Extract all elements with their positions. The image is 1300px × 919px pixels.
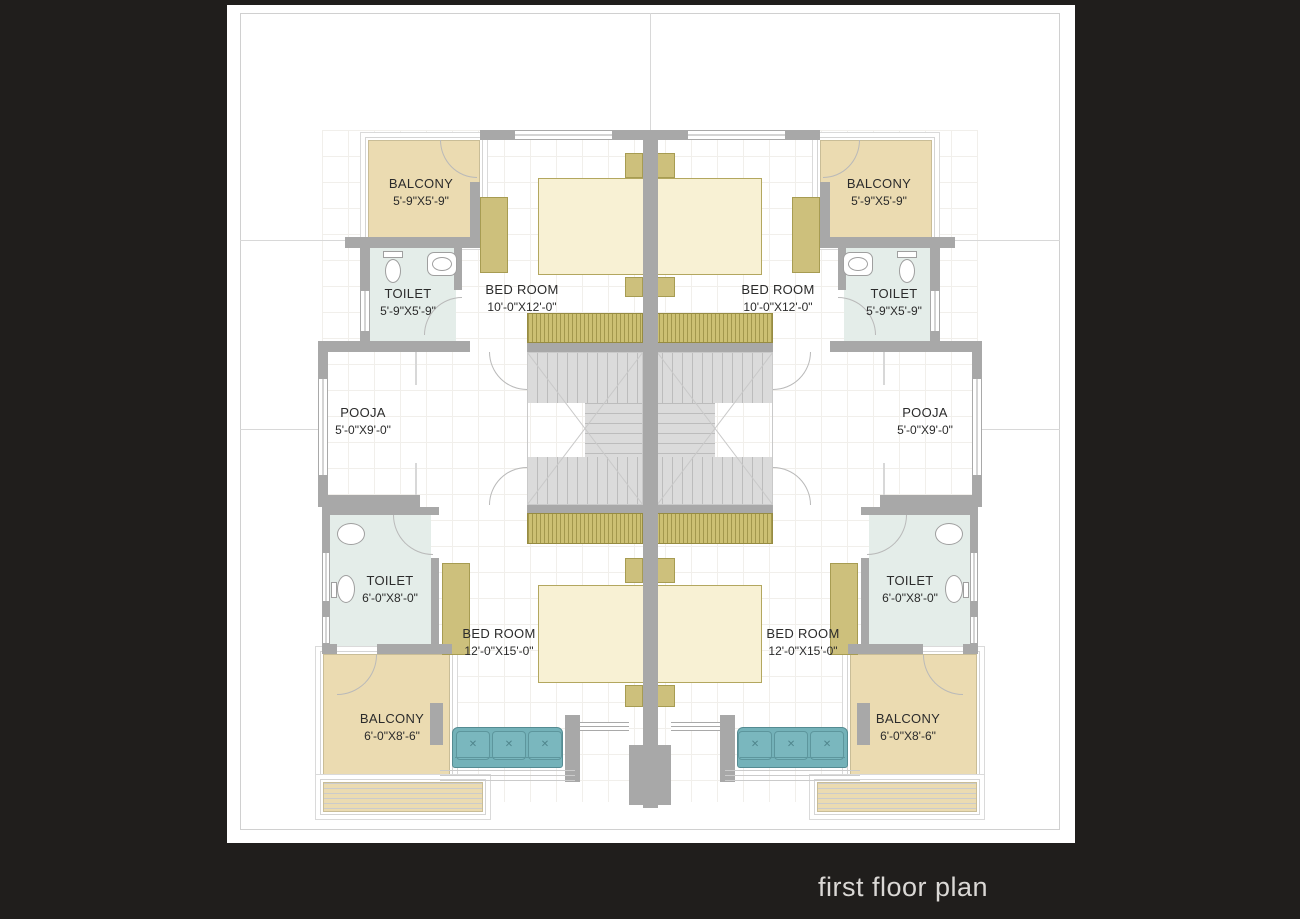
wall	[861, 507, 978, 515]
wall	[820, 237, 955, 248]
bedside-table	[657, 558, 675, 583]
bed	[538, 178, 644, 275]
bed	[656, 178, 762, 275]
sink	[427, 252, 457, 276]
wardrobe	[657, 313, 773, 343]
bedside-table	[657, 685, 675, 707]
wardrobe	[792, 197, 820, 273]
stairwell-outline	[527, 352, 643, 505]
wall	[880, 495, 982, 507]
wall	[318, 495, 420, 507]
sofa-cushion	[492, 731, 526, 760]
window	[688, 130, 785, 140]
room-label-toilet-bottom-right: TOILET6'-0"X8'-0"	[840, 573, 980, 605]
balcony-terrace-steps	[817, 782, 977, 812]
page: { "title": "first floor plan", "colors":…	[0, 0, 1300, 919]
room-label-bedroom-bottom-left: BED ROOM12'-0"X15'-0"	[429, 626, 569, 658]
terrace-edge-lines	[725, 770, 860, 785]
sofa	[452, 727, 563, 768]
wardrobe	[527, 513, 643, 544]
wall	[322, 507, 439, 515]
bedside-table	[625, 153, 643, 178]
party-wall	[643, 130, 658, 808]
pooja-opening-stub	[415, 352, 417, 385]
window	[515, 130, 612, 140]
room-label-balcony-bottom-left: BALCONY6'-0"X8'-6"	[322, 711, 462, 743]
pooja-opening-stub	[883, 463, 885, 495]
wall	[963, 644, 978, 654]
wall	[318, 341, 470, 352]
toilet-tank	[383, 251, 403, 258]
toilet-wc	[899, 259, 915, 283]
wardrobe	[657, 513, 773, 544]
plan-title: first floor plan	[818, 872, 988, 903]
window	[580, 722, 629, 731]
terrace-edge-lines	[440, 770, 575, 785]
room-label-pooja-right: POOJA5'-0"X9'-0"	[855, 405, 995, 437]
window	[322, 617, 330, 643]
room-label-balcony-top-right: BALCONY5'-9"X5'-9"	[809, 176, 949, 208]
wall	[657, 505, 773, 513]
wall-post	[629, 745, 643, 805]
window	[970, 617, 978, 643]
bedside-table	[657, 153, 675, 178]
window	[671, 722, 720, 731]
room-label-balcony-top-left: BALCONY5'-9"X5'-9"	[351, 176, 491, 208]
wall	[785, 130, 820, 140]
sofa-cushion	[528, 731, 562, 760]
wardrobe	[527, 313, 643, 343]
wall	[657, 343, 773, 352]
drawing-sheet: BALCONY5'-9"X5'-9" BALCONY5'-9"X5'-9" TO…	[227, 5, 1075, 843]
pooja-opening-stub	[883, 352, 885, 385]
room-label-bedroom-top-left: BED ROOM10'-0"X12'-0"	[452, 282, 592, 314]
sink	[935, 523, 963, 545]
bedside-table	[625, 558, 643, 583]
wall	[527, 505, 643, 513]
wall	[322, 644, 337, 654]
wardrobe	[480, 197, 508, 273]
toilet-wc	[385, 259, 401, 283]
wall	[527, 343, 643, 352]
balcony-terrace-steps	[323, 782, 483, 812]
wall	[480, 130, 515, 140]
sofa-cushion	[738, 731, 772, 760]
wall-post	[657, 745, 671, 805]
toilet-tank	[897, 251, 917, 258]
sink	[337, 523, 365, 545]
room-label-bedroom-bottom-right: BED ROOM12'-0"X15'-0"	[733, 626, 873, 658]
wall	[345, 237, 480, 248]
bedside-table	[625, 685, 643, 707]
room-label-bedroom-top-right: BED ROOM10'-0"X12'-0"	[708, 282, 848, 314]
bedside-table	[625, 277, 643, 297]
room-label-toilet-bottom-left: TOILET6'-0"X8'-0"	[320, 573, 460, 605]
sofa-cushion	[774, 731, 808, 760]
stairwell-outline	[657, 352, 773, 505]
bedside-table	[657, 277, 675, 297]
pooja-opening-stub	[415, 463, 417, 495]
room-label-pooja-left: POOJA5'-0"X9'-0"	[293, 405, 433, 437]
sink	[843, 252, 873, 276]
room-label-balcony-bottom-right: BALCONY6'-0"X8'-6"	[838, 711, 978, 743]
wall	[830, 341, 982, 352]
sofa	[737, 727, 848, 768]
